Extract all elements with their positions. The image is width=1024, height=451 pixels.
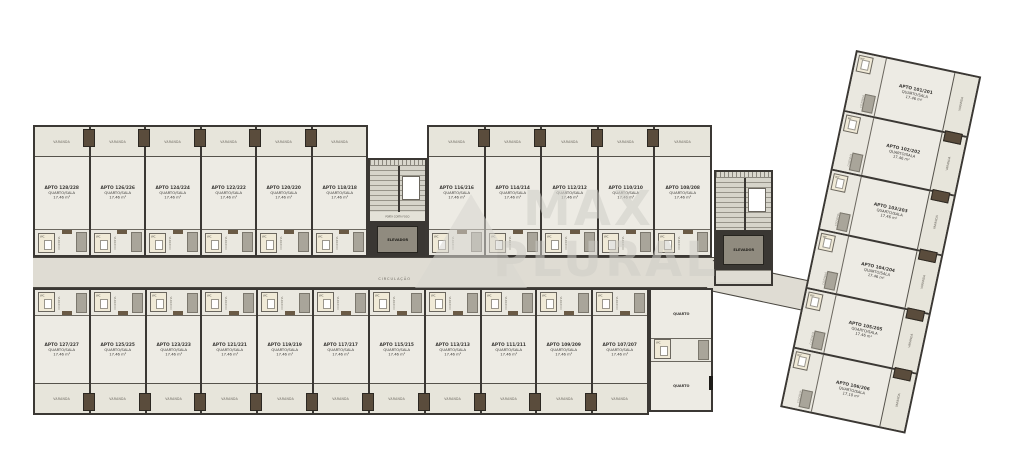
- kitchen-counter: [527, 232, 538, 252]
- kitchen-label: COZINHA: [336, 296, 339, 309]
- kitchen-counter: [697, 232, 708, 252]
- apartment-unit: COZINHA WC APTO 107/207 QUARTO/SALA 17.4…: [593, 290, 647, 413]
- elevator-shaft: ELEVADOR: [370, 221, 425, 258]
- unit-label: APTO 109/209 QUARTO/SALA 17.46 m²: [547, 342, 581, 357]
- kitchen-label: COZINHA: [621, 236, 624, 249]
- kitchen-counter: [298, 232, 309, 252]
- unit-area: 17.46 m²: [211, 196, 245, 201]
- apartment-unit: VARANDA APTO 124/224 QUARTO/SALA 17.46 m…: [146, 127, 202, 255]
- balcony-label: VARANDA: [895, 393, 901, 408]
- wc-box: WC: [602, 233, 619, 253]
- balcony: VARANDA: [35, 127, 89, 157]
- elevator-cab: ELEVADOR: [723, 235, 764, 265]
- balcony-label: VARANDA: [444, 397, 461, 401]
- apartment-unit: COZINHA WC APTO 119/219 QUARTO/SALA 17.4…: [258, 290, 314, 413]
- unit-type: QUARTO/SALA: [45, 348, 79, 353]
- unit-area: 17.46 m²: [156, 196, 190, 201]
- door: [118, 311, 128, 315]
- unit-label: APTO 110/210 QUARTO/SALA 17.46 m²: [609, 186, 643, 201]
- top-row-left-section: VARANDA APTO 128/228 QUARTO/SALA 17.46 m…: [33, 125, 368, 257]
- balcony: VARANDA: [370, 383, 424, 413]
- service-strip: COZINHA WC: [542, 229, 597, 255]
- wc-label: WC: [822, 235, 827, 239]
- service-strip: COZINHA WC: [202, 229, 256, 255]
- main-room: APTO 128/228 QUARTO/SALA 17.46 m²: [35, 157, 89, 229]
- service-strip: COZINHA WC: [482, 290, 536, 316]
- door: [453, 311, 463, 315]
- kitchen-counter: [353, 232, 364, 252]
- unit-label: APTO 123/223 QUARTO/SALA 17.46 m²: [156, 342, 190, 357]
- door: [397, 311, 407, 315]
- service-strip: COZINHA WC: [313, 229, 367, 255]
- unit-label: APTO 125/225 QUARTO/SALA 17.46 m²: [101, 342, 135, 357]
- unit-type: QUARTO/SALA: [156, 348, 190, 353]
- balcony: VARANDA: [146, 127, 200, 157]
- service-strip: COZINHA WC: [593, 290, 647, 316]
- wc-label: WC: [660, 235, 665, 238]
- balcony: VARANDA: [537, 383, 591, 413]
- unit-label: APTO 119/219 QUARTO/SALA 17.46 m²: [268, 342, 302, 357]
- wc-box: WC: [843, 114, 861, 134]
- unit-type: QUARTO/SALA: [380, 348, 414, 353]
- unit-area: 17.46 m²: [552, 196, 586, 201]
- door: [62, 230, 72, 234]
- balcony-label: VARANDA: [277, 397, 294, 401]
- service-strip: COZINHA WC: [537, 290, 591, 316]
- balcony: VARANDA: [314, 383, 368, 413]
- stair-elevator-core-1: PORTA CORTA FOGO ELEVADOR: [368, 158, 427, 258]
- main-room: APTO 107/207 QUARTO/SALA 17.46 m²: [593, 316, 647, 383]
- unit-number: APTO 107/207: [603, 342, 637, 347]
- balcony-label: VARANDA: [612, 397, 629, 401]
- balcony-label: VARANDA: [54, 397, 71, 401]
- apartment-unit: COZINHA WC APTO 115/215 QUARTO/SALA 17.4…: [370, 290, 426, 413]
- wc-label: WC: [797, 353, 802, 357]
- wc-label: WC: [434, 235, 439, 238]
- door: [626, 230, 636, 234]
- unit-area: 17.46 m²: [380, 352, 414, 357]
- wc-box: WC: [373, 292, 390, 312]
- door: [508, 311, 518, 315]
- unit-label: APTO 121/221 QUARTO/SALA 17.46 m²: [212, 342, 246, 357]
- main-room: APTO 124/224 QUARTO/SALA 17.46 m²: [146, 157, 200, 229]
- wc-box: WC: [489, 233, 506, 253]
- apartment-unit: COZINHA WC APTO 117/217 QUARTO/SALA 17.4…: [314, 290, 370, 413]
- kitchen-label: COZINHA: [57, 296, 60, 309]
- main-room: APTO 111/211 QUARTO/SALA 17.46 m²: [482, 316, 536, 383]
- kitchen-label: COZINHA: [113, 236, 116, 249]
- wc-box: WC: [205, 233, 222, 253]
- unit-number: APTO 119/219: [268, 342, 302, 347]
- unit-label: APTO 108/208 QUARTO/SALA 17.46 m²: [665, 186, 699, 201]
- kitchen-label: COZINHA: [57, 236, 60, 249]
- unit-area: 17.46 m²: [665, 196, 699, 201]
- wc-box: WC: [856, 55, 874, 75]
- wc-box: WC: [317, 292, 334, 312]
- kitchen-counter: [471, 232, 482, 252]
- balcony-label: VARANDA: [275, 140, 292, 144]
- apartment-unit: VARANDA APTO 118/218 QUARTO/SALA 17.46 m…: [313, 127, 367, 255]
- fire-door-label: PORTA CORTA FOGO: [385, 215, 409, 218]
- apartment-unit: VARANDA APTO 122/222 QUARTO/SALA 17.46 m…: [202, 127, 258, 255]
- unit-label: APTO 120/220 QUARTO/SALA 17.46 m²: [267, 186, 301, 201]
- service-strip: COZINHA WC: [35, 229, 89, 255]
- balcony: VARANDA: [429, 127, 484, 157]
- unit-label: APTO 126/226 QUARTO/SALA 17.46 m²: [100, 186, 134, 201]
- unit-label: APTO 105/205 QUARTO/SALA 17.46 m²: [846, 320, 883, 342]
- unit-number: APTO 123/223: [156, 342, 190, 347]
- balcony-label: VARANDA: [618, 140, 635, 144]
- kitchen-label: COZINHA: [847, 153, 853, 166]
- main-room: APTO 118/218 QUARTO/SALA 17.46 m²: [313, 157, 367, 229]
- balcony-label: VARANDA: [333, 397, 350, 401]
- wc-box: WC: [150, 292, 167, 312]
- apartment-unit: VARANDA APTO 114/214 QUARTO/SALA 17.46 m…: [486, 127, 543, 255]
- door: [683, 230, 693, 234]
- kitchen-label: COZINHA: [809, 331, 815, 344]
- balcony-label: VARANDA: [500, 397, 517, 401]
- unit-type: QUARTO/SALA: [101, 348, 135, 353]
- kitchen-counter: [299, 293, 310, 313]
- door: [229, 311, 239, 315]
- kitchen-counter: [355, 293, 366, 313]
- wc-label: WC: [152, 294, 157, 297]
- unit-area: 17.46 m²: [100, 196, 134, 201]
- unit-type: QUARTO/SALA: [212, 348, 246, 353]
- elevator-label: ELEVADOR: [733, 248, 754, 252]
- unit-area: 17.46 m²: [324, 352, 358, 357]
- main-room: APTO 112/212 QUARTO/SALA 17.46 m²: [542, 157, 597, 229]
- unit-label: APTO 117/217 QUARTO/SALA 17.46 m²: [324, 342, 358, 357]
- unit-label: APTO 101/201 QUARTO/SALA 17.46 m²: [896, 84, 933, 106]
- unit-label: APTO 104/204 QUARTO/SALA 17.46 m²: [858, 261, 895, 283]
- balcony-label: VARANDA: [164, 140, 181, 144]
- unit-label: APTO 103/203 QUARTO/SALA 17.46 m²: [871, 202, 908, 224]
- main-room: APTO 122/222 QUARTO/SALA 17.46 m²: [202, 157, 256, 229]
- door: [117, 230, 127, 234]
- unit-number: APTO 121/221: [212, 342, 246, 347]
- kitchen-counter: [243, 293, 254, 313]
- service-strip: COZINHA WC: [146, 229, 200, 255]
- kitchen-label: COZINHA: [504, 296, 507, 309]
- wc-box: WC: [540, 292, 557, 312]
- main-room: APTO 114/214 QUARTO/SALA 17.46 m²: [486, 157, 541, 229]
- service-strip: WC: [651, 338, 711, 362]
- wc-box: WC: [38, 233, 55, 253]
- unit-area: 17.46 m²: [609, 196, 643, 201]
- main-room: APTO 115/215 QUARTO/SALA 17.46 m²: [370, 316, 424, 383]
- balcony: VARANDA: [482, 383, 536, 413]
- balcony: VARANDA: [313, 127, 367, 157]
- balcony-label: VARANDA: [165, 397, 182, 401]
- balcony-label: VARANDA: [53, 140, 70, 144]
- wc-label: WC: [96, 235, 101, 238]
- main-room: APTO 123/223 QUARTO/SALA 17.46 m²: [147, 316, 201, 383]
- kitchen-label: COZINHA: [335, 236, 338, 249]
- service-strip: COZINHA WC: [202, 290, 256, 316]
- wc-box: WC: [205, 292, 222, 312]
- annex-room-lower: QUARTO: [651, 362, 711, 410]
- corridor-label: CIRCULAÇÃO: [379, 277, 412, 281]
- rotated-wing-section: WC COZINHA APTO 101/201 QUARTO/SALA 17.4…: [780, 50, 981, 434]
- balcony: VARANDA: [147, 383, 201, 413]
- annex-rooms: QUARTO WC QUARTO: [649, 288, 713, 412]
- kitchen-label: COZINHA: [508, 236, 511, 249]
- kitchen-label: COZINHA: [224, 236, 227, 249]
- kitchen-label: COZINHA: [565, 236, 568, 249]
- wc-label: WC: [207, 294, 212, 297]
- unit-label: APTO 106/206 QUARTO/SALA 17.10 m²: [833, 380, 870, 402]
- balcony-label: VARANDA: [331, 140, 348, 144]
- apartment-unit: VARANDA APTO 108/208 QUARTO/SALA 17.46 m…: [655, 127, 710, 255]
- unit-number: APTO 113/213: [435, 342, 469, 347]
- kitchen-label: COZINHA: [560, 296, 563, 309]
- service-strip: COZINHA WC: [426, 290, 480, 316]
- kitchen-label: COZINHA: [392, 296, 395, 309]
- unit-type: QUARTO/SALA: [435, 348, 469, 353]
- main-room: APTO 127/227 QUARTO/SALA 17.46 m²: [35, 316, 89, 383]
- door: [228, 230, 238, 234]
- wc-label: WC: [487, 294, 492, 297]
- balcony: VARANDA: [257, 127, 311, 157]
- unit-area: 17.46 m²: [101, 352, 135, 357]
- apartment-unit: COZINHA WC APTO 123/223 QUARTO/SALA 17.4…: [147, 290, 203, 413]
- apartment-unit: VARANDA APTO 120/220 QUARTO/SALA 17.46 m…: [257, 127, 313, 255]
- unit-number: APTO 117/217: [324, 342, 358, 347]
- apartment-unit: VARANDA APTO 126/226 QUARTO/SALA 17.46 m…: [91, 127, 147, 255]
- unit-area: 17.46 m²: [267, 196, 301, 201]
- kitchen-counter: [132, 293, 143, 313]
- balcony: VARANDA: [599, 127, 654, 157]
- wc-box: WC: [658, 233, 675, 253]
- kitchen-counter: [522, 293, 533, 313]
- unit-area: 17.46 m²: [435, 352, 469, 357]
- wc-label: WC: [151, 235, 156, 238]
- balcony-label: VARANDA: [920, 275, 926, 290]
- bottom-row-section: COZINHA WC APTO 127/227 QUARTO/SALA 17.4…: [33, 288, 649, 415]
- unit-label: APTO 118/218 QUARTO/SALA 17.46 m²: [322, 186, 356, 201]
- unit-label: APTO 127/227 QUARTO/SALA 17.46 m²: [45, 342, 79, 357]
- kitchen-label: COZINHA: [113, 296, 116, 309]
- elevator-label: ELEVADOR: [387, 238, 408, 242]
- balcony-label: VARANDA: [109, 397, 126, 401]
- stair-well: [748, 188, 766, 212]
- unit-number: APTO 109/209: [547, 342, 581, 347]
- unit-label: APTO 122/222 QUARTO/SALA 17.46 m²: [211, 186, 245, 201]
- wc-box: WC: [596, 292, 613, 312]
- door: [564, 311, 574, 315]
- unit-area: 17.46 m²: [439, 196, 473, 201]
- unit-type: QUARTO/SALA: [491, 348, 525, 353]
- kitchen-label: COZINHA: [821, 272, 827, 285]
- kitchen-label: COZINHA: [279, 236, 282, 249]
- balcony-label: VARANDA: [674, 140, 691, 144]
- main-room: APTO 125/225 QUARTO/SALA 17.46 m²: [91, 316, 145, 383]
- kitchen-counter: [76, 232, 87, 252]
- door: [620, 311, 630, 315]
- kitchen-counter: [187, 293, 198, 313]
- balcony-label: VARANDA: [220, 140, 237, 144]
- main-room: APTO 120/220 QUARTO/SALA 17.46 m²: [257, 157, 311, 229]
- wc-label: WC: [491, 235, 496, 238]
- unit-number: APTO 125/225: [101, 342, 135, 347]
- balcony: VARANDA: [202, 127, 256, 157]
- unit-type: QUARTO/SALA: [547, 348, 581, 353]
- balcony: VARANDA: [542, 127, 597, 157]
- kitchen-label: COZINHA: [225, 296, 228, 309]
- unit-label: APTO 107/207 QUARTO/SALA 17.46 m²: [603, 342, 637, 357]
- kitchen-label: COZINHA: [859, 94, 865, 107]
- door: [173, 311, 183, 315]
- kitchen-label: COZINHA: [451, 236, 454, 249]
- apartment-unit: VARANDA APTO 128/228 QUARTO/SALA 17.46 m…: [35, 127, 91, 255]
- balcony: VARANDA: [202, 383, 256, 413]
- wc-box: WC: [485, 292, 502, 312]
- elevator-cab: ELEVADOR: [377, 226, 418, 253]
- fire-door-label-strip: PORTA CORTA FOGO: [370, 212, 425, 221]
- wc-box: WC: [316, 233, 333, 253]
- stair-landing: [716, 270, 771, 282]
- kitchen-counter: [411, 293, 422, 313]
- service-strip: COZINHA WC: [429, 229, 484, 255]
- wc-label: WC: [835, 175, 840, 179]
- apartment-unit: COZINHA WC APTO 109/209 QUARTO/SALA 17.4…: [537, 290, 593, 413]
- balcony: VARANDA: [655, 127, 710, 157]
- wc-box: WC: [654, 339, 671, 359]
- kitchen-label: COZINHA: [169, 296, 172, 309]
- wc-box: WC: [38, 292, 55, 312]
- unit-type: QUARTO/SALA: [603, 348, 637, 353]
- wc-box: WC: [94, 292, 111, 312]
- service-strip: COZINHA WC: [147, 290, 201, 316]
- unit-number: APTO 111/211: [491, 342, 525, 347]
- wc-label: WC: [96, 294, 101, 297]
- main-room: APTO 108/208 QUARTO/SALA 17.46 m²: [655, 157, 710, 229]
- annex-room-label: QUARTO: [673, 384, 689, 388]
- balcony-label: VARANDA: [933, 215, 939, 230]
- balcony: VARANDA: [91, 127, 145, 157]
- main-room: APTO 121/221 QUARTO/SALA 17.46 m²: [202, 316, 256, 383]
- kitchen-label: COZINHA: [281, 296, 284, 309]
- staircase: [716, 178, 771, 230]
- apartment-unit: COZINHA WC APTO 125/225 QUARTO/SALA 17.4…: [91, 290, 147, 413]
- floorplan-canvas: VARANDA APTO 128/228 QUARTO/SALA 17.46 m…: [0, 0, 1024, 451]
- top-row-right-section: VARANDA APTO 116/216 QUARTO/SALA 17.46 m…: [427, 125, 712, 257]
- apartment-unit: COZINHA WC APTO 111/211 QUARTO/SALA 17.4…: [482, 290, 538, 413]
- door: [284, 230, 294, 234]
- wc-label: WC: [547, 235, 552, 238]
- kitchen-label: COZINHA: [616, 296, 619, 309]
- kitchen-counter: [634, 293, 645, 313]
- balcony: VARANDA: [593, 383, 647, 413]
- staircase: [370, 166, 425, 212]
- service-strip: COZINHA WC: [91, 290, 145, 316]
- unit-number: APTO 127/227: [45, 342, 79, 347]
- kitchen-counter: [242, 232, 253, 252]
- main-room: APTO 126/226 QUARTO/SALA 17.46 m²: [91, 157, 145, 229]
- unit-label: APTO 113/213 QUARTO/SALA 17.46 m²: [435, 342, 469, 357]
- wc-label: WC: [263, 294, 268, 297]
- wc-box: WC: [432, 233, 449, 253]
- service-strip: COZINHA WC: [314, 290, 368, 316]
- unit-label: APTO 116/216 QUARTO/SALA 17.46 m²: [439, 186, 473, 201]
- unit-area: 17.46 m²: [45, 352, 79, 357]
- wc-label: WC: [598, 294, 603, 297]
- wc-label: WC: [431, 294, 436, 297]
- wc-label: WC: [860, 57, 865, 61]
- apartment-unit: COZINHA WC APTO 121/221 QUARTO/SALA 17.4…: [202, 290, 258, 413]
- wc-label: WC: [262, 235, 267, 238]
- apartment-unit: VARANDA APTO 112/212 QUARTO/SALA 17.46 m…: [542, 127, 599, 255]
- balcony: VARANDA: [486, 127, 541, 157]
- wc-label: WC: [40, 235, 45, 238]
- balcony-label: VARANDA: [448, 140, 465, 144]
- kitchen-counter: [698, 340, 709, 360]
- balcony-label: VARANDA: [504, 140, 521, 144]
- unit-area: 17.46 m²: [322, 196, 356, 201]
- service-strip: COZINHA WC: [91, 229, 145, 255]
- balcony-label: VARANDA: [945, 156, 951, 171]
- unit-label: APTO 115/215 QUARTO/SALA 17.46 m²: [380, 342, 414, 357]
- kitchen-counter: [578, 293, 589, 313]
- wc-label: WC: [319, 294, 324, 297]
- wc-label: WC: [847, 116, 852, 120]
- annex-room-label: QUARTO: [673, 312, 689, 316]
- wc-box: WC: [830, 173, 848, 193]
- main-room: APTO 117/217 QUARTO/SALA 17.46 m²: [314, 316, 368, 383]
- service-strip: COZINHA WC: [370, 290, 424, 316]
- wc-box: WC: [545, 233, 562, 253]
- kitchen-counter: [584, 232, 595, 252]
- service-strip: COZINHA WC: [486, 229, 541, 255]
- kitchen-counter: [131, 232, 142, 252]
- unit-label: APTO 128/228 QUARTO/SALA 17.46 m²: [45, 186, 79, 201]
- door: [457, 230, 467, 234]
- apartment-unit: COZINHA WC APTO 113/213 QUARTO/SALA 17.4…: [426, 290, 482, 413]
- kitchen-label: COZINHA: [448, 296, 451, 309]
- wc-label: WC: [810, 294, 815, 298]
- wc-label: WC: [375, 294, 380, 297]
- door: [173, 230, 183, 234]
- door: [339, 230, 349, 234]
- wc-label: WC: [656, 341, 661, 344]
- kitchen-counter: [76, 293, 87, 313]
- door: [570, 230, 580, 234]
- stair-elevator-core-2: ELEVADOR: [714, 170, 773, 286]
- unit-number: APTO 115/215: [380, 342, 414, 347]
- wc-box: WC: [149, 233, 166, 253]
- wc-box: WC: [94, 233, 111, 253]
- wc-box: WC: [805, 291, 823, 311]
- stair-well: [402, 176, 420, 200]
- service-strip: COZINHA WC: [258, 290, 312, 316]
- unit-area: 17.46 m²: [496, 196, 530, 201]
- wc-label: WC: [207, 235, 212, 238]
- door: [513, 230, 523, 234]
- kitchen-label: COZINHA: [168, 236, 171, 249]
- unit-area: 17.46 m²: [491, 352, 525, 357]
- kitchen-label: COZINHA: [678, 236, 681, 249]
- apartment-unit: VARANDA APTO 110/210 QUARTO/SALA 17.46 m…: [599, 127, 656, 255]
- door: [285, 311, 295, 315]
- elevator-shaft: ELEVADOR: [716, 230, 771, 270]
- unit-area: 17.46 m²: [547, 352, 581, 357]
- balcony: VARANDA: [91, 383, 145, 413]
- unit-label: APTO 102/202 QUARTO/SALA 17.46 m²: [884, 143, 921, 165]
- unit-area: 17.46 m²: [603, 352, 637, 357]
- unit-area: 17.46 m²: [156, 352, 190, 357]
- wc-label: WC: [604, 235, 609, 238]
